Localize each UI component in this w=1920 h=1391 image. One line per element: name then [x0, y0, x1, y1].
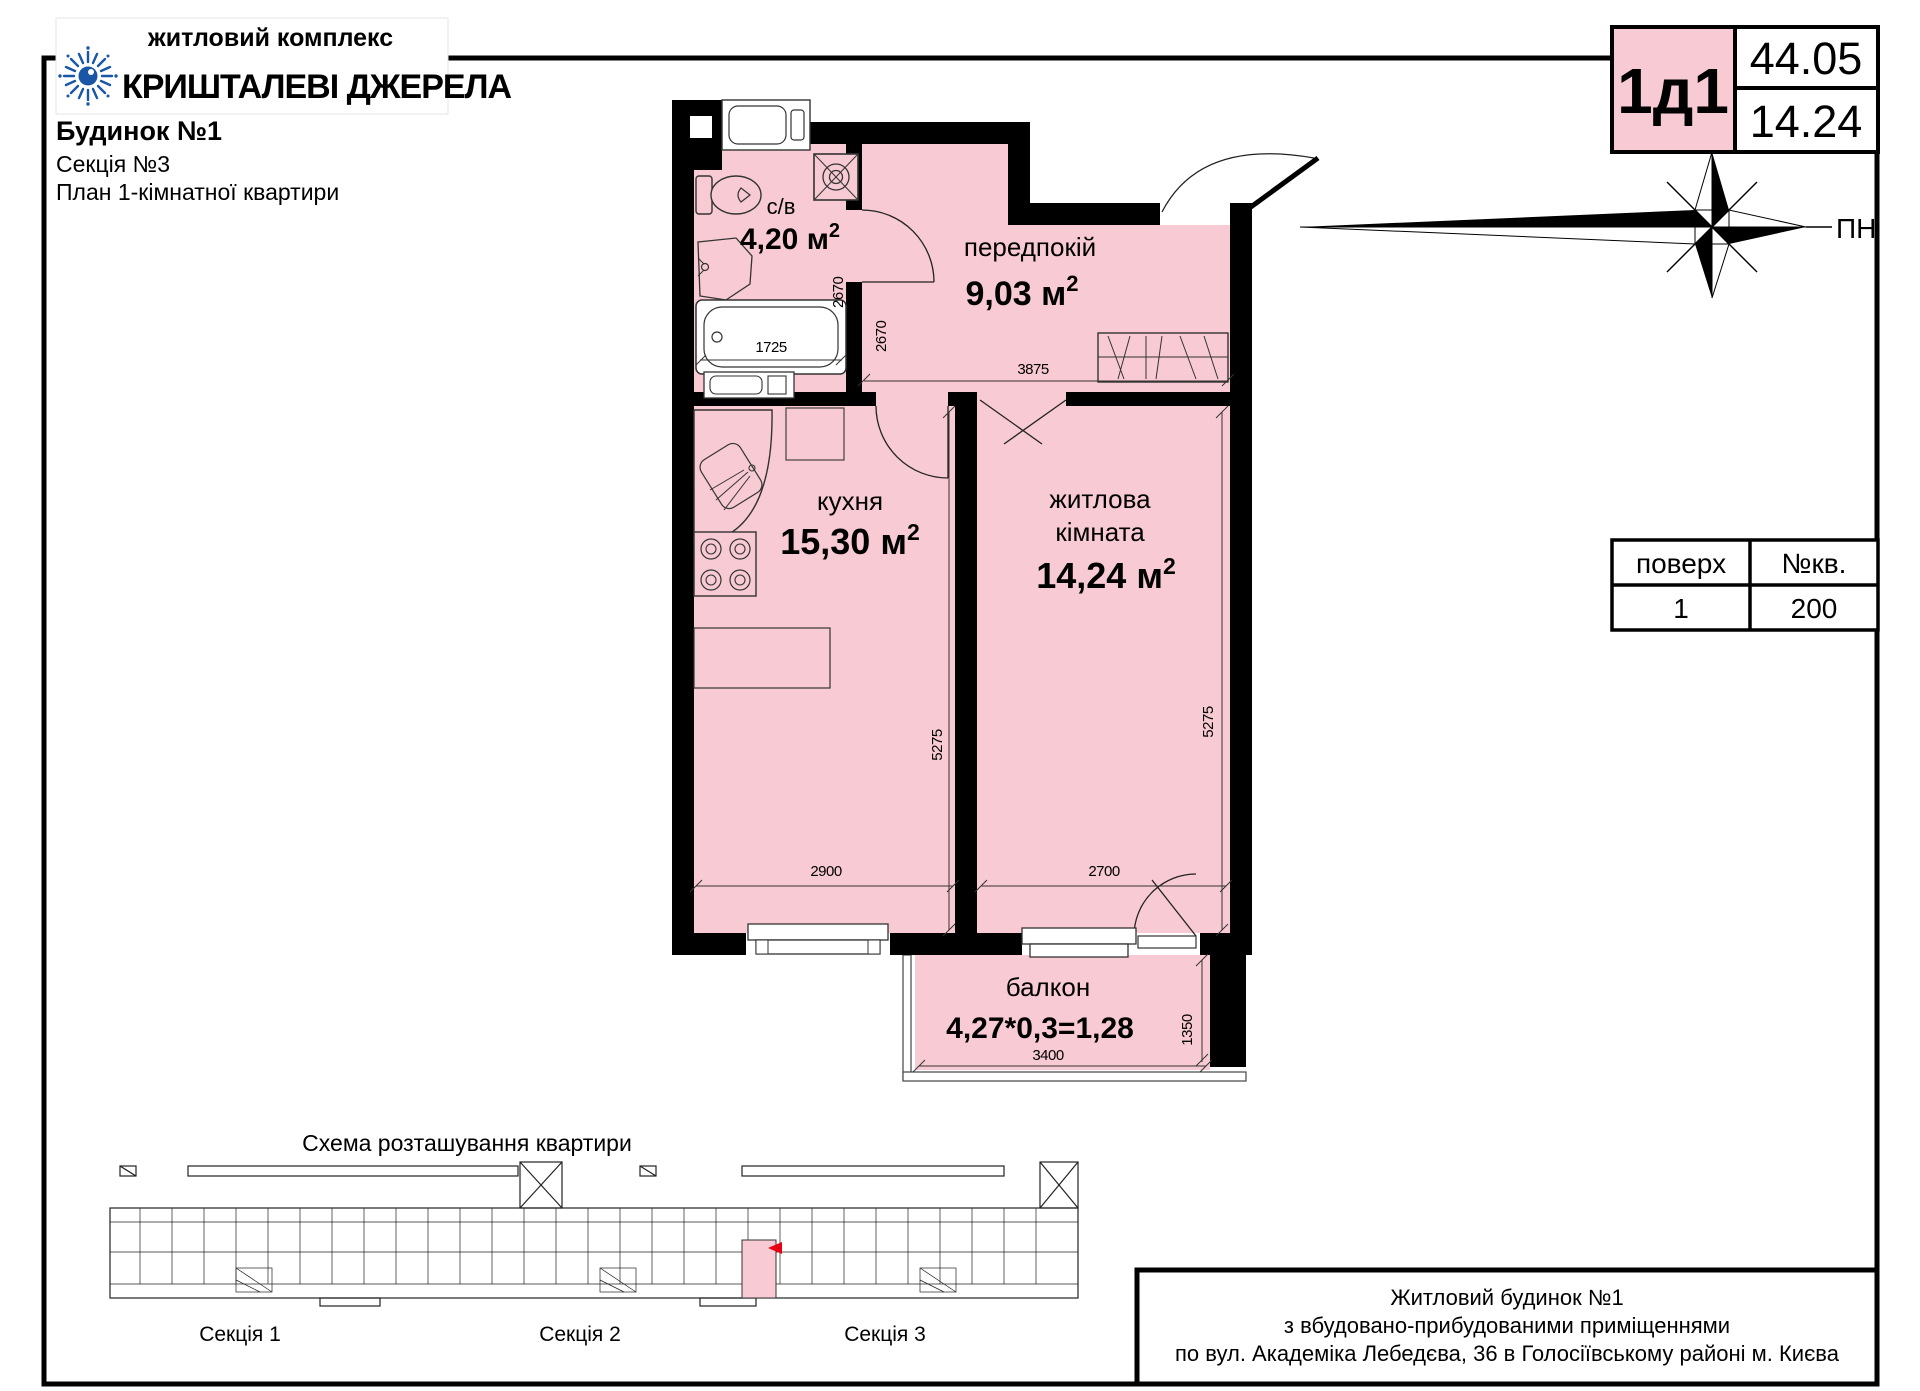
scheme-title: Схема розташування квартири	[302, 1130, 632, 1156]
dim-kitchen-height: 5275	[929, 729, 946, 761]
building-title: Будинок №1	[56, 116, 222, 146]
footer-info-box: Житловий будинок №1 з вбудовано-прибудов…	[1137, 1270, 1877, 1384]
north-label: ПН	[1836, 213, 1876, 244]
scheme-section-1: Секція 1	[199, 1323, 281, 1346]
living-area-sup: 2	[1163, 553, 1176, 579]
wardrobe-icon	[1098, 333, 1228, 382]
toilet-icon	[696, 176, 761, 214]
floor-value: 1	[1673, 593, 1689, 624]
logo: житловий комплекс КРИШТАЛЕВІ ДЖЕРЕЛА	[56, 18, 511, 114]
dim-living-height: 5275	[1200, 706, 1217, 738]
compass-north-icon: ПН	[1300, 152, 1876, 298]
living-label-line2: кімната	[1055, 517, 1145, 547]
unit-code: 1д1	[1617, 55, 1729, 127]
apartment-floor-plan: 1725 2670 2670 3875 5275 5275 2900 2700 …	[672, 100, 1318, 1081]
hall-area-value: 9,03 м	[965, 275, 1066, 313]
washer-under-tub-icon	[704, 372, 794, 398]
dim-balcony-width: 3400	[1032, 1047, 1064, 1064]
plan-type-title: План 1-кімнатної квартири	[56, 179, 339, 205]
location-scheme: Схема розташування квартири	[110, 1130, 1078, 1346]
bathroom-area-sup: 2	[829, 220, 840, 242]
apt-value: 200	[1791, 593, 1838, 624]
apt-header: №кв.	[1782, 548, 1847, 579]
living-window-icon	[1022, 928, 1136, 957]
floor-plan-canvas: житловий комплекс КРИШТАЛЕВІ ДЖЕРЕЛА Буд…	[0, 0, 1920, 1391]
dim-living-width: 2700	[1088, 863, 1120, 880]
scheme-section-2: Секція 2	[539, 1323, 621, 1346]
logo-title: КРИШТАЛЕВІ ДЖЕРЕЛА	[122, 68, 511, 106]
section-title: Секція №3	[56, 151, 170, 177]
kitchen-area-value: 15,30 м	[780, 521, 907, 562]
unit-card: 1д1 44.05 14.24	[1612, 27, 1878, 152]
bathroom-area-value: 4,20 м	[740, 223, 829, 256]
unit-living-area: 14.24	[1750, 96, 1863, 147]
logo-subtitle: житловий комплекс	[147, 24, 393, 52]
hall-area-sup: 2	[1066, 271, 1078, 296]
floor-header: поверх	[1636, 548, 1726, 579]
dim-hall-height: 2670	[873, 320, 890, 352]
shaft-notch	[690, 116, 712, 138]
dim-hall-width: 3875	[1017, 361, 1049, 378]
dim-bath-height: 2670	[830, 276, 847, 308]
washing-machine-icon	[722, 100, 810, 150]
living-label-line1: житлова	[1049, 484, 1151, 514]
living-area: 14,24 м2	[1036, 553, 1176, 596]
footer-line1: Житловий будинок №1	[1390, 1285, 1623, 1310]
flyer-page: житловий комплекс КРИШТАЛЕВІ ДЖЕРЕЛА Буд…	[0, 0, 1920, 1391]
kitchen-label: кухня	[817, 486, 883, 516]
scheme-section-3: Секція 3	[844, 1323, 926, 1346]
bathroom-label: с/в	[767, 194, 796, 219]
vent-shaft-icon	[814, 154, 858, 200]
dim-bath-width: 1725	[755, 339, 787, 356]
stove-icon	[694, 532, 756, 596]
living-area-value: 14,24 м	[1036, 555, 1163, 596]
floor-apt-table: поверх №кв. 1 200	[1612, 540, 1878, 630]
kitchen-area: 15,30 м2	[780, 519, 920, 562]
unit-total-area: 44.05	[1750, 33, 1863, 84]
sun-logo-icon	[58, 46, 117, 105]
dim-balcony-depth: 1350	[1179, 1014, 1196, 1046]
balcony-label: балкон	[1006, 972, 1090, 1002]
kitchen-area-sup: 2	[907, 519, 920, 545]
hall-label: передпокій	[964, 232, 1096, 262]
balcony-area-formula: 4,27*0,3=1,28	[946, 1012, 1134, 1045]
dim-kitchen-width: 2900	[810, 863, 842, 880]
kitchen-window-icon	[748, 924, 888, 954]
footer-line3: по вул. Академіка Лебедєва, 36 в Голосії…	[1175, 1341, 1840, 1366]
footer-line2: з вбудовано-прибудованими приміщеннями	[1284, 1313, 1730, 1338]
bathtub-icon	[696, 300, 846, 374]
hall-area: 9,03 м2	[965, 271, 1078, 313]
bathroom-area: 4,20 м2	[740, 220, 840, 256]
